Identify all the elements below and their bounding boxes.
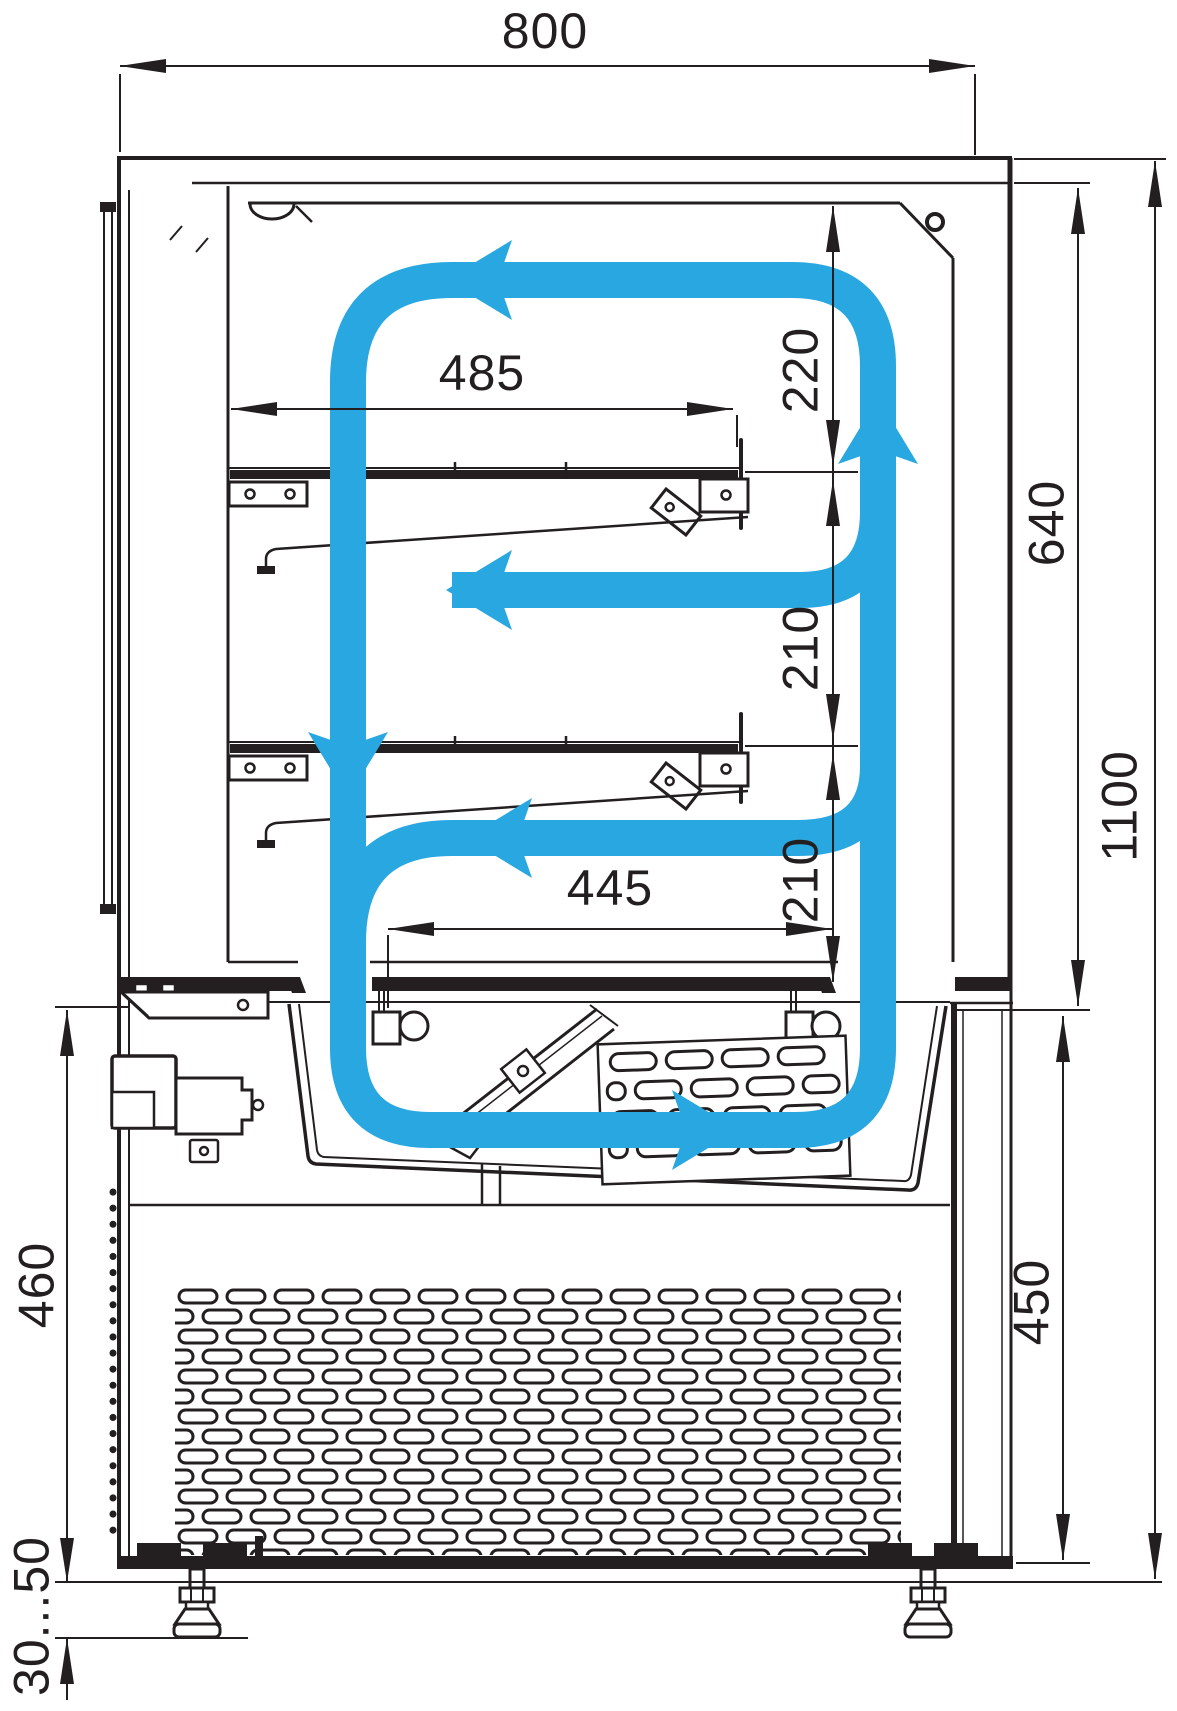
- dim-label-210-1: 210: [773, 605, 829, 691]
- dim-label-460: 460: [9, 1242, 65, 1328]
- dim-label-800: 800: [502, 3, 588, 59]
- dimension-display-inner-height: 640: [954, 183, 1090, 1010]
- dim-arrow-icon: [826, 694, 840, 740]
- dim-arrow-icon: [826, 754, 840, 800]
- dimension-upper-shelf-length: 485: [231, 345, 737, 447]
- dim-arrow-icon: [1056, 1016, 1070, 1062]
- dim-arrow-icon: [1148, 161, 1162, 207]
- dim-arrow-icon: [687, 402, 733, 416]
- dim-arrow-icon: [60, 1638, 74, 1684]
- dim-arrow-icon: [826, 206, 840, 252]
- perforated-plate: [598, 1036, 851, 1185]
- dim-label-220: 220: [773, 327, 829, 413]
- dimension-base-height-right: 450: [1004, 1016, 1091, 1563]
- dim-arrow-icon: [826, 480, 840, 526]
- dim-label-640: 640: [1019, 480, 1075, 566]
- screw-icon: [927, 214, 943, 230]
- dim-arrow-icon: [826, 420, 840, 466]
- dim-arrow-icon: [1071, 960, 1085, 1006]
- front-glass: [100, 202, 208, 914]
- dim-arrow-icon: [826, 936, 840, 982]
- dim-arrow-icon: [60, 1538, 74, 1582]
- dim-arrow-icon: [1148, 1533, 1162, 1579]
- dim-arrow-icon: [929, 59, 975, 73]
- dim-label-30-50: 30...50: [4, 1536, 60, 1696]
- dimension-overall-height: 1100: [1014, 159, 1166, 1579]
- fan-icon: [400, 1012, 428, 1040]
- fan-left: [373, 991, 428, 1044]
- glass-reflection-mark: [170, 226, 182, 240]
- glass-reflection-mark: [196, 238, 208, 252]
- dim-arrow-icon: [1056, 1514, 1070, 1560]
- shelf-1: [228, 440, 748, 574]
- lamp-icon: [250, 204, 294, 219]
- dim-arrow-icon: [1071, 188, 1085, 234]
- ventilation-grille: [175, 1287, 901, 1555]
- dim-label-485: 485: [439, 345, 525, 401]
- compressor-unit: [112, 1056, 263, 1162]
- dim-arrow-icon: [60, 1010, 74, 1056]
- dim-label-210-2: 210: [773, 837, 829, 923]
- dimension-overall-width: 800: [120, 3, 975, 155]
- dim-label-445: 445: [567, 860, 653, 916]
- dim-arrow-icon: [388, 922, 434, 936]
- drawing-stage: 800 485 220 210 210: [0, 0, 1177, 1711]
- dim-arrow-icon: [120, 59, 166, 73]
- dim-label-1100: 1100: [1092, 750, 1148, 862]
- dim-arrow-icon: [231, 402, 277, 416]
- display-case-section-drawing: 800 485 220 210 210: [0, 0, 1177, 1711]
- dim-label-450: 450: [1004, 1259, 1060, 1345]
